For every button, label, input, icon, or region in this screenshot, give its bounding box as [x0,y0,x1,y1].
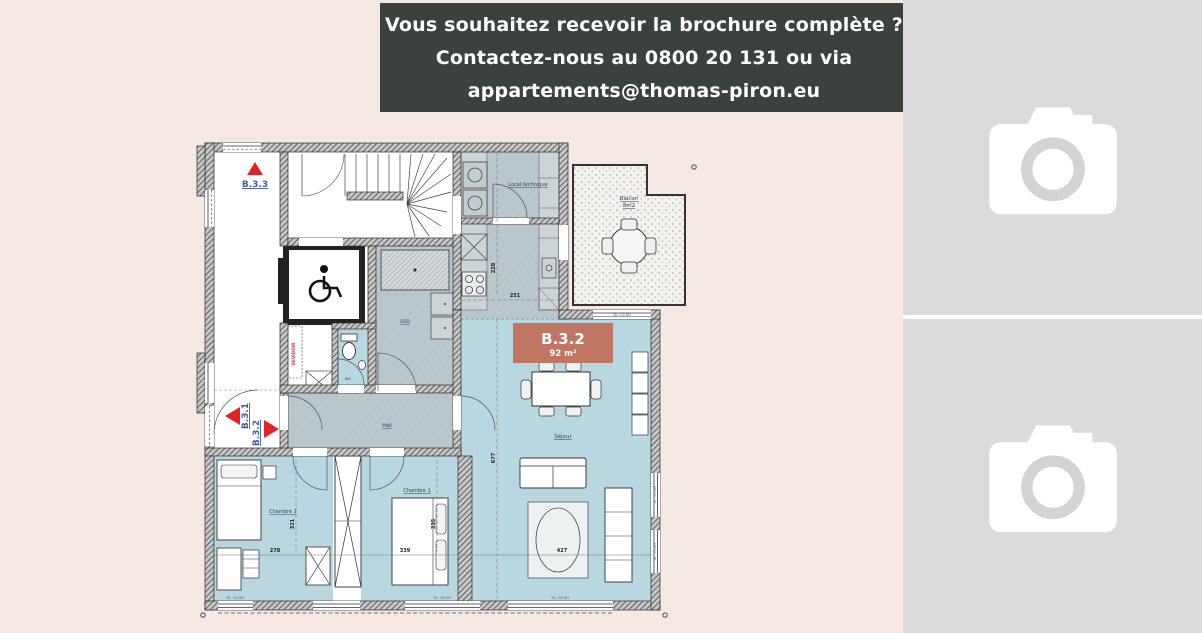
window-label: TA : 00 DH [550,596,569,600]
label-sdd: SDD [400,319,410,325]
window-label: TA : 00 DH [432,596,451,600]
toilet-icon [343,343,356,360]
photo-placeholder-bottom [903,319,1202,633]
elevator [278,244,365,325]
label-sejour: Séjour [554,433,572,440]
window-label: TA : 00 DH [653,543,657,562]
banner-line-3: appartements@thomas-piron.eu [380,75,908,108]
dim-427: 427 [557,548,568,554]
label-balcon-area: 8m2 [623,203,635,209]
label-local-technique: Local technique [508,182,547,188]
banner-line-2: Contactez-nous au 0800 20 131 ou via [380,42,908,75]
rug [528,502,588,578]
label-wc: WC [345,376,352,381]
contact-banner: Vous souhaitez recevoir la brochure comp… [380,3,908,112]
dim-278: 278 [270,548,281,554]
floor-plan-svg: Balcon 8m2 [195,138,705,620]
camera-icon [978,92,1128,224]
chambre1-furniture [392,498,448,585]
dim-677: 677 [491,452,497,463]
dim-251: 251 [510,293,521,299]
balcony-table [610,227,648,265]
dim-321: 321 [290,518,296,529]
tv-cabinet [605,488,632,582]
floor-plan: Balcon 8m2 [195,138,705,620]
label-balcon: Balcon [620,196,639,202]
unit-area: 92 m² [549,349,577,359]
window-label: TA : 00 DH [653,486,657,505]
banner-line-1: Vous souhaitez recevoir la brochure comp… [380,9,908,42]
desk [217,548,241,590]
label-devidoir: DEVIDOIR [291,342,296,366]
unit-label: B.3.2 92 m² [513,323,613,363]
oven-icon [463,162,487,188]
camera-icon [978,410,1128,542]
label-hall: Hall [382,423,392,429]
label-chambre1: Chambre 1 [403,488,431,494]
balcony: Balcon 8m2 [573,165,685,305]
dining-table [532,372,590,406]
dim-228: 228 [491,262,497,273]
unit-title: B.3.2 [541,330,585,348]
label-chambre2: Chambre 2 [269,509,297,515]
label-b31: B.3.1 [241,403,251,429]
washbasin-icon [359,361,366,370]
window-label: TA : 00 DH [225,596,244,600]
dim-339: 339 [400,548,411,554]
dim-335: 335 [431,518,437,529]
label-b32-exit: B.3.2 [252,420,262,446]
photo-placeholder-top [903,0,1202,315]
label-b33: B.3.3 [242,180,268,190]
oven-icon [463,190,487,216]
window-label: TA : 00 DH [612,313,631,317]
